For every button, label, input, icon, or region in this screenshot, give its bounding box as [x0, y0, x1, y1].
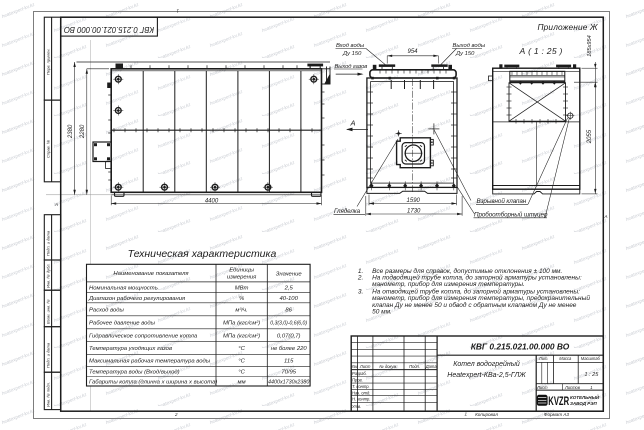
svg-text:115: 115 — [284, 359, 294, 365]
svg-text:манометр, прибор для измерения: манометр, прибор для измерения температу… — [372, 280, 525, 288]
svg-text:А: А — [604, 214, 608, 219]
svg-text:А ( 1 : 25 ): А ( 1 : 25 ) — [519, 46, 563, 56]
svg-text:4400: 4400 — [205, 198, 219, 204]
svg-text:Габариты котла (длинна х ширин: Габариты котла (длинна х ширина х высота… — [89, 379, 217, 385]
svg-text:2380: 2380 — [68, 124, 74, 139]
svg-text:2055: 2055 — [587, 129, 593, 144]
svg-text:Единицы: Единицы — [229, 268, 254, 274]
svg-text:не более 220: не более 220 — [271, 346, 308, 352]
svg-text:ЗАВОД РЭП: ЗАВОД РЭП — [570, 401, 597, 406]
svg-text:Температура уходящих газов: Температура уходящих газов — [89, 346, 172, 352]
svg-text:Пров.: Пров. — [352, 378, 363, 383]
svg-text:Разраб.: Разраб. — [352, 371, 367, 376]
svg-text:2: 2 — [174, 412, 178, 417]
svg-text:50 мм.: 50 мм. — [372, 309, 392, 316]
svg-text:86: 86 — [285, 308, 292, 314]
svg-text:Ду 150: Ду 150 — [455, 51, 475, 57]
svg-text:Гидравлическое сопротивление к: Гидравлическое сопротивление котла — [89, 333, 198, 339]
svg-text:%: % — [239, 296, 244, 302]
svg-text:70/95: 70/95 — [281, 370, 296, 376]
svg-text:Инв. № дубл.: Инв. № дубл. — [46, 263, 51, 288]
svg-text:Взам. инв. №: Взам. инв. № — [46, 299, 51, 324]
svg-text:2280: 2280 — [80, 124, 86, 139]
svg-text:клапан Ду не менее 50 и обвод: клапан Ду не менее 50 и обвод с обратным… — [372, 301, 577, 309]
svg-text:Масса: Масса — [559, 356, 572, 361]
svg-text:185х954: 185х954 — [587, 35, 593, 56]
svg-text:Перв. примен.: Перв. примен. — [46, 48, 51, 75]
svg-text:Значение: Значение — [276, 272, 303, 278]
svg-text:Котел водогрейный: Котел водогрейный — [453, 360, 520, 368]
svg-text:954: 954 — [407, 49, 418, 55]
svg-text:МПа (кгс/см²): МПа (кгс/см²) — [223, 321, 260, 327]
svg-text:Справ. №: Справ. № — [46, 139, 51, 158]
svg-text:КВГ 0.215.021.00.000 ВО: КВГ 0.215.021.00.000 ВО — [64, 25, 154, 34]
svg-text:Масштаб: Масштаб — [581, 356, 601, 361]
svg-text:Приложение Ж: Приложение Ж — [538, 22, 599, 32]
svg-text:МВт: МВт — [235, 286, 249, 292]
svg-text:4400х1730х2380: 4400х1730х2380 — [268, 379, 309, 385]
svg-text:А: А — [54, 202, 58, 207]
svg-text:°С: °С — [238, 346, 245, 352]
svg-text:Расход воды: Расход воды — [89, 308, 125, 314]
svg-text:1 : 25: 1 : 25 — [584, 372, 599, 378]
svg-text:40-100: 40-100 — [280, 296, 299, 302]
svg-text:Номинальная мощность: Номинальная мощность — [89, 286, 158, 292]
svg-text:Т. контр.: Т. контр. — [352, 384, 370, 389]
svg-text:Рабочее давление воды: Рабочее давление воды — [89, 321, 156, 327]
svg-text:А: А — [350, 119, 356, 128]
svg-text:Нач. отд.: Нач. отд. — [352, 391, 370, 396]
svg-text:Ду 150: Ду 150 — [342, 51, 362, 57]
svg-text:мм: мм — [238, 379, 246, 385]
svg-text:1590: 1590 — [407, 198, 421, 204]
svg-text:КОТЕЛЬНЫЙ: КОТЕЛЬНЫЙ — [570, 393, 600, 400]
svg-text:Формат А3: Формат А3 — [544, 412, 570, 417]
svg-text:Гляделка: Гляделка — [334, 207, 361, 215]
svg-text:KVZR: KVZR — [548, 394, 569, 408]
svg-text:°С: °С — [238, 359, 245, 365]
svg-text:Утв.: Утв. — [352, 404, 361, 409]
svg-text:МПа (кгс/см²): МПа (кгс/см²) — [223, 333, 260, 339]
svg-text:Техническая характеристика: Техническая характеристика — [128, 248, 277, 260]
svg-text:0,3(3,0)-0,6(6,0): 0,3(3,0)-0,6(6,0) — [270, 321, 307, 327]
svg-text:Heatexpert-КВа-2,5-ГЛЖ: Heatexpert-КВа-2,5-ГЛЖ — [447, 372, 526, 379]
svg-text:Температура воды (Вход/выход): Температура воды (Вход/выход) — [89, 370, 180, 376]
svg-text:измерения: измерения — [227, 275, 257, 281]
svg-text:Лист: Лист — [359, 364, 371, 369]
svg-text:1730: 1730 — [407, 209, 421, 215]
svg-text:Максимальная рабочая температу: Максимальная рабочая температура воды — [89, 359, 211, 365]
svg-text:Подп. и дата: Подп. и дата — [46, 230, 51, 256]
svg-text:Дата: Дата — [425, 364, 438, 369]
svg-text:°С: °С — [238, 370, 245, 376]
svg-text:Лист: Лист — [536, 385, 548, 390]
svg-text:Взрывной клапан: Взрывной клапан — [477, 197, 527, 205]
svg-text:2.: 2. — [357, 275, 364, 282]
svg-text:№ докум.: № докум. — [379, 364, 397, 369]
svg-text:3.: 3. — [358, 288, 364, 295]
svg-text:Диапазон рабочего регулировани: Диапазон рабочего регулирования — [88, 296, 186, 302]
svg-text:Н. контр.: Н. контр. — [352, 397, 370, 402]
svg-text:м³/ч.: м³/ч. — [235, 308, 247, 314]
svg-text:Подп.: Подп. — [409, 364, 420, 369]
svg-text:Подп. и дата: Подп. и дата — [46, 342, 51, 368]
svg-text:Инв. № подл.: Инв. № подл. — [46, 382, 51, 407]
svg-text:Листов: Листов — [564, 385, 581, 390]
svg-text:1: 1 — [590, 385, 592, 390]
svg-text:Лит.: Лит. — [538, 356, 549, 361]
svg-text:Изм: Изм — [351, 364, 359, 369]
svg-text:0,07(0,7): 0,07(0,7) — [277, 333, 301, 339]
svg-text:Копировал: Копировал — [475, 412, 498, 417]
svg-text:2,5: 2,5 — [284, 286, 294, 292]
svg-text:КВГ 0.215.021.00.000 ВО: КВГ 0.215.021.00.000 ВО — [471, 342, 570, 352]
svg-text:Наименование показателя: Наименование показателя — [113, 271, 189, 277]
svg-text:Пробоотборный штуцер: Пробоотборный штуцер — [474, 211, 548, 219]
